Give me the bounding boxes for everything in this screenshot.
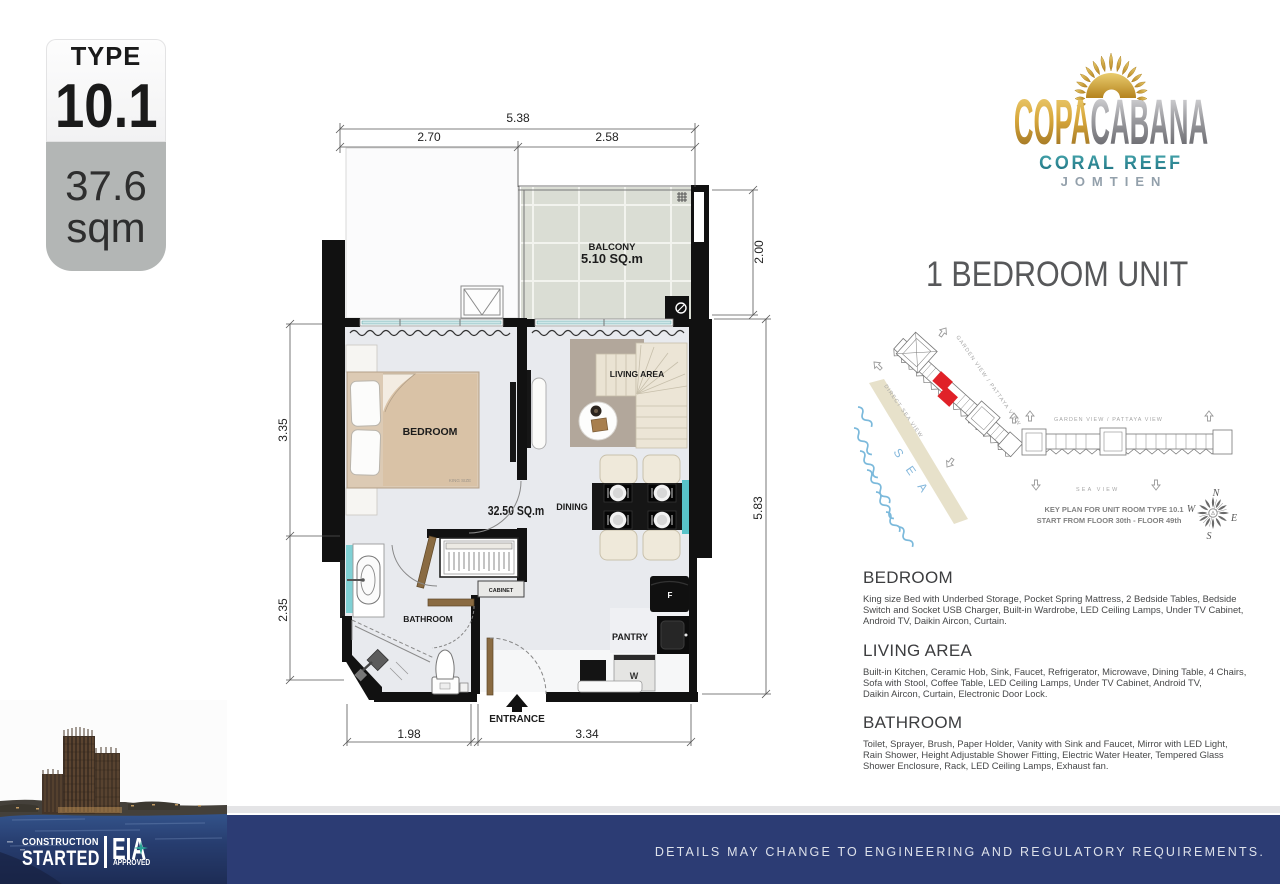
svg-text:PANTRY: PANTRY (612, 632, 648, 642)
svg-text:START FROM FLOOR 30th - FLOOR: START FROM FLOOR 30th - FLOOR 49th (1037, 516, 1182, 525)
svg-text:2.00: 2.00 (752, 240, 766, 264)
svg-text:N: N (1212, 488, 1221, 499)
svg-text:5.10 SQ.m: 5.10 SQ.m (581, 251, 643, 266)
svg-text:DINING: DINING (556, 502, 588, 512)
svg-text:E: E (1230, 513, 1237, 524)
svg-text:5.38: 5.38 (506, 111, 530, 125)
svg-text:KEY PLAN FOR UNIT ROOM TYPE 10: KEY PLAN FOR UNIT ROOM TYPE 10.1 (1044, 505, 1183, 514)
svg-text:32.50 SQ.m: 32.50 SQ.m (488, 504, 545, 518)
svg-text:3.34: 3.34 (575, 727, 599, 741)
svg-text:LIVING AREA: LIVING AREA (610, 369, 664, 379)
svg-text:2.58: 2.58 (595, 130, 619, 144)
svg-text:1.98: 1.98 (397, 727, 421, 741)
svg-text:CORAL REEF: CORAL REEF (1039, 151, 1183, 173)
svg-text:F: F (668, 591, 673, 600)
svg-text:CABINET: CABINET (489, 588, 514, 594)
svg-text:JOMTIEN: JOMTIEN (1061, 174, 1168, 189)
svg-text:GARDEN VIEW / PATTAYA VIEW: GARDEN VIEW / PATTAYA VIEW (1054, 417, 1163, 423)
svg-text:BATHROOM: BATHROOM (403, 614, 452, 624)
svg-text:2.70: 2.70 (417, 130, 441, 144)
svg-text:5.83: 5.83 (751, 496, 765, 520)
svg-text:S: S (1207, 531, 1212, 542)
svg-text:SEA VIEW: SEA VIEW (1076, 487, 1119, 493)
svg-text:3.35: 3.35 (276, 418, 290, 442)
svg-text:W: W (1187, 504, 1197, 515)
svg-text:BEDROOM: BEDROOM (403, 426, 458, 438)
svg-text:KING SIZE: KING SIZE (449, 478, 471, 483)
svg-text:ENTRANCE: ENTRANCE (489, 714, 545, 725)
svg-text:2.35: 2.35 (276, 598, 290, 622)
svg-text:W: W (630, 671, 639, 681)
svg-text:COPACABANA: COPACABANA (1014, 87, 1208, 159)
